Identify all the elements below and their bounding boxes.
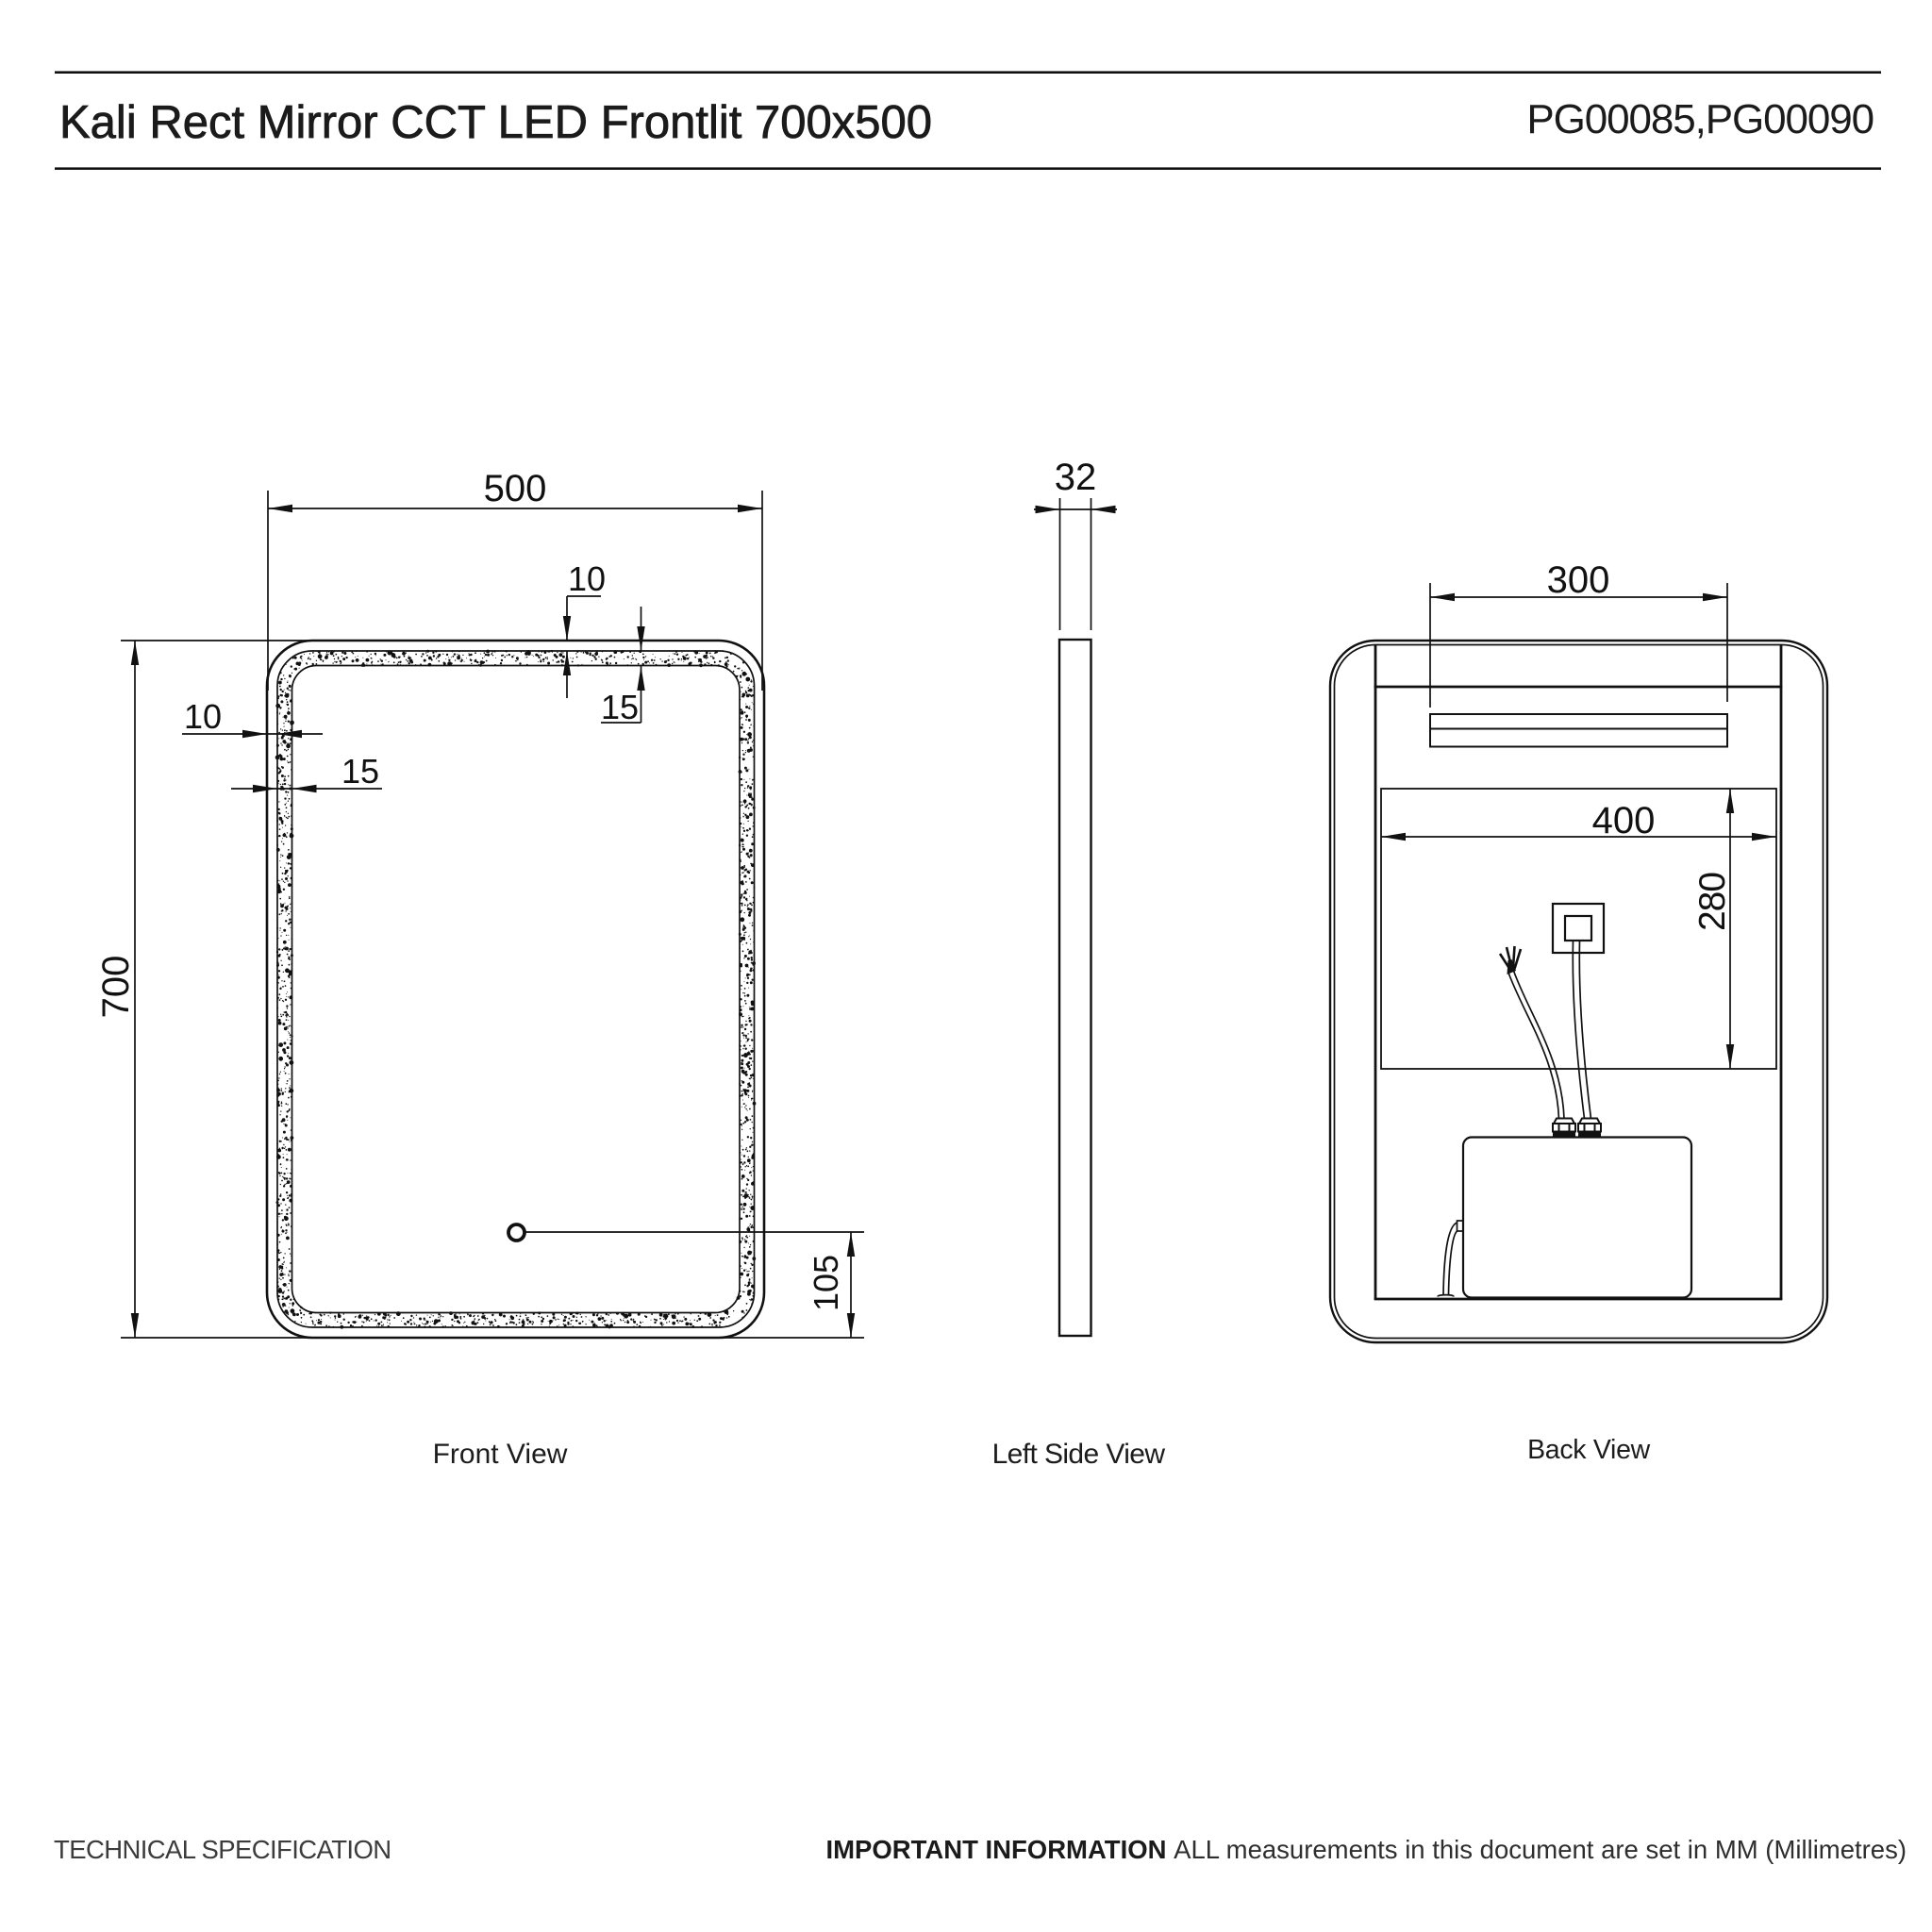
- svg-text:280: 280: [1692, 873, 1733, 931]
- svg-text:300: 300: [1547, 559, 1610, 601]
- svg-text:PG00085,PG00090: PG00085,PG00090: [1526, 96, 1874, 142]
- svg-text:15: 15: [601, 688, 639, 726]
- svg-text:105: 105: [807, 1255, 845, 1311]
- svg-text:400: 400: [1592, 800, 1656, 841]
- svg-text:500: 500: [484, 468, 547, 509]
- svg-text:Front View: Front View: [433, 1439, 568, 1470]
- svg-text:Left Side View: Left Side View: [992, 1439, 1166, 1470]
- svg-text:Kali Rect Mirror CCT LED Front: Kali Rect Mirror CCT LED Frontlit 700x50…: [59, 97, 932, 148]
- svg-text:700: 700: [95, 956, 137, 1019]
- svg-text:IMPORTANT INFORMATION ALL meas: IMPORTANT INFORMATION ALL measurements i…: [825, 1835, 1907, 1864]
- svg-text:10: 10: [184, 697, 222, 736]
- svg-text:Back View: Back View: [1527, 1435, 1651, 1465]
- svg-text:10: 10: [568, 559, 606, 598]
- svg-text:TECHNICAL SPECIFICATION: TECHNICAL SPECIFICATION: [54, 1835, 391, 1864]
- svg-text:32: 32: [1055, 457, 1097, 498]
- svg-text:15: 15: [341, 752, 379, 791]
